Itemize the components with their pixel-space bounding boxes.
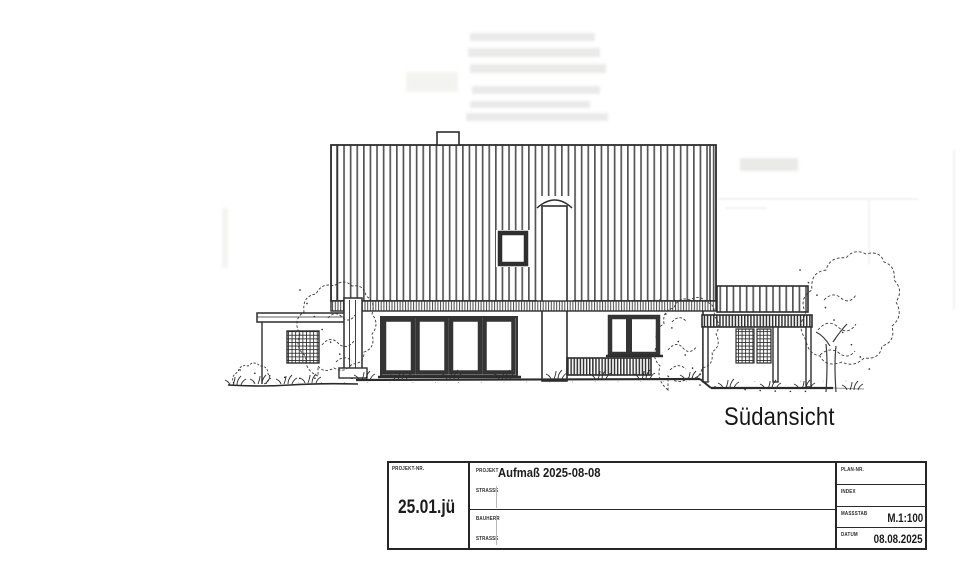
porch <box>702 286 812 387</box>
drawing-caption: Südansicht <box>724 403 835 432</box>
garage-fascia <box>257 313 350 322</box>
massstab-cell: MASSSTAB M.1:100 <box>837 507 925 528</box>
massstab-value: M.1:100 <box>887 513 923 525</box>
plan-nr-cell: PLAN-NR. <box>837 463 925 485</box>
divider <box>496 515 497 545</box>
main-roof <box>331 145 716 301</box>
porch-lattice <box>736 329 754 363</box>
title-block: PROJEKT-NR. 25.01.jü PROJEKT Aufmaß 2025… <box>387 461 927 550</box>
ridge-vent <box>437 132 459 145</box>
index-label: INDEX <box>841 489 856 495</box>
massstab-label: MASSSTAB <box>841 511 867 517</box>
garage-annex <box>257 313 350 384</box>
porch-post <box>703 327 708 382</box>
door-panel <box>418 320 447 373</box>
datum-cell: DATUM 08.08.2025 <box>837 528 925 548</box>
garage-lattice-window <box>287 331 319 363</box>
projekt-value: Aufmaß 2025-08-08 <box>498 466 601 480</box>
plan-nr-label: PLAN-NR. <box>841 467 864 473</box>
door-panel <box>485 320 514 373</box>
projekt-label: PROJEKT <box>476 468 499 474</box>
eave-fascia <box>331 301 716 311</box>
index-cell: INDEX <box>837 485 925 507</box>
skylight-window <box>496 230 530 267</box>
bauherr-row: BAUHERR STRASSE <box>470 510 835 548</box>
door-panel <box>384 320 413 373</box>
project-row: PROJEKT Aufmaß 2025-08-08 STRASSE <box>470 463 835 510</box>
patio-door <box>378 317 521 377</box>
porch-lattice <box>757 329 771 363</box>
scanned-plan-sheet: Südansicht PROJEKT-NR. 25.01.jü PROJEKT … <box>0 0 960 583</box>
upper-window <box>606 317 663 356</box>
project-nr-label: PROJEKT-NR. <box>392 466 424 472</box>
divider <box>496 486 497 508</box>
title-block-project-cell: PROJEKT Aufmaß 2025-08-08 STRASSE BAUHER… <box>470 463 837 548</box>
tree <box>801 252 900 392</box>
chimney <box>537 196 573 382</box>
project-nr-value: 25.01.jü <box>398 497 455 519</box>
terrace-railing <box>567 358 651 375</box>
door-panel <box>451 320 480 373</box>
porch-post <box>773 327 778 382</box>
title-block-meta-column: PLAN-NR. INDEX MASSSTAB M.1:100 DATUM 08… <box>837 463 925 548</box>
datum-label: DATUM <box>841 532 858 538</box>
porch-roof <box>717 286 808 312</box>
datum-value: 08.08.2025 <box>874 534 923 546</box>
title-block-project-nr-cell: PROJEKT-NR. 25.01.jü <box>389 463 470 548</box>
porch-post <box>806 327 811 387</box>
